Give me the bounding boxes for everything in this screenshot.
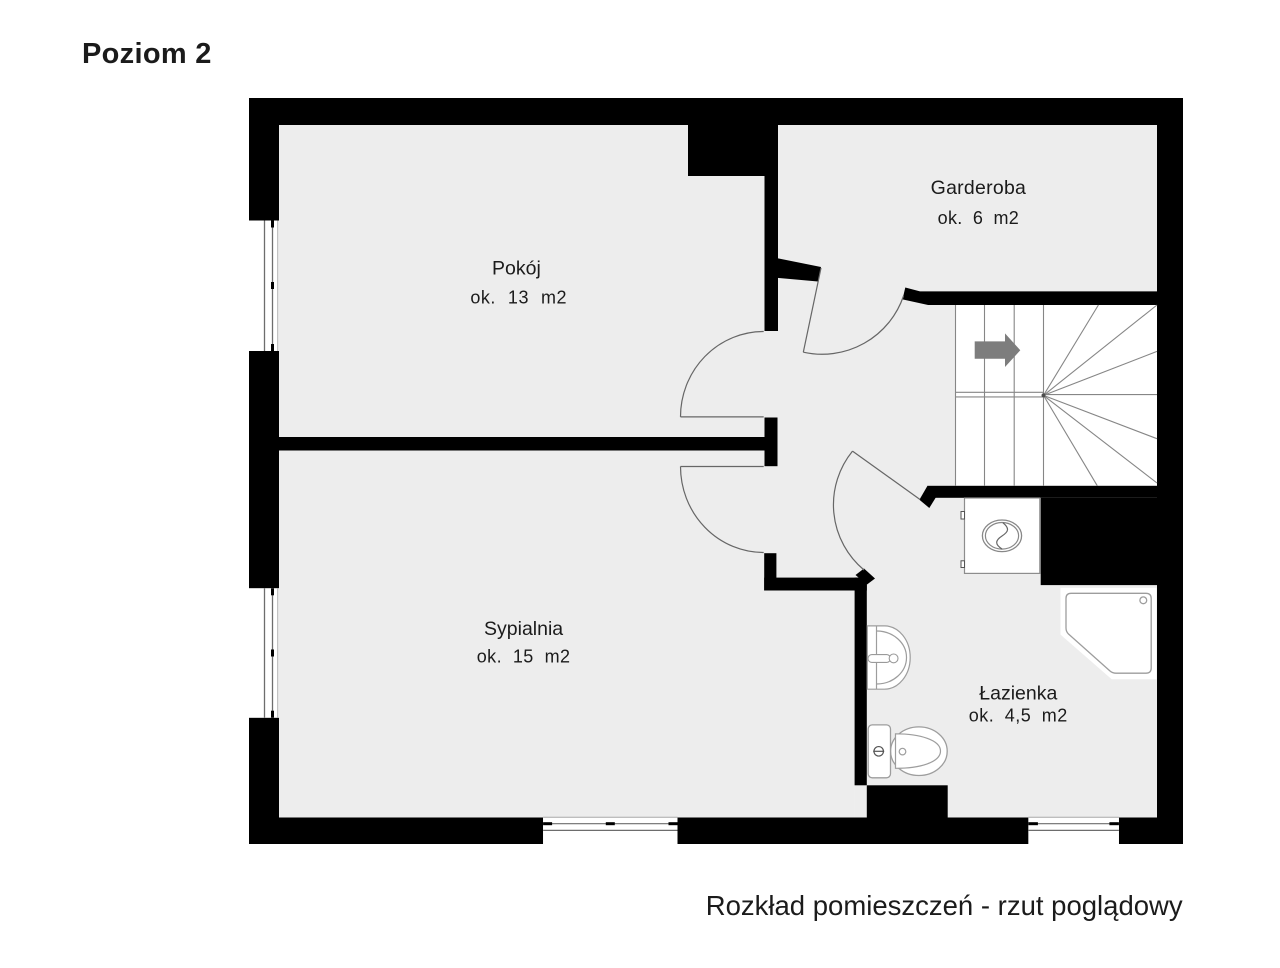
svg-text:ok. 15 m2: ok. 15 m2 [477, 647, 571, 667]
svg-text:Poziom 2: Poziom 2 [82, 38, 212, 70]
svg-text:Garderoba: Garderoba [931, 177, 1026, 199]
svg-text:Sypialnia: Sypialnia [484, 618, 563, 640]
svg-text:ok. 13 m2: ok. 13 m2 [470, 287, 567, 307]
svg-text:ok. 6 m2: ok. 6 m2 [938, 208, 1019, 228]
svg-text:Łazienka: Łazienka [979, 683, 1057, 705]
svg-text:Pokój: Pokój [492, 258, 541, 280]
svg-text:Rozkład pomieszczeń - rzut pog: Rozkład pomieszczeń - rzut poglądowy [706, 890, 1183, 921]
svg-text:ok. 4,5 m2: ok. 4,5 m2 [969, 705, 1068, 725]
